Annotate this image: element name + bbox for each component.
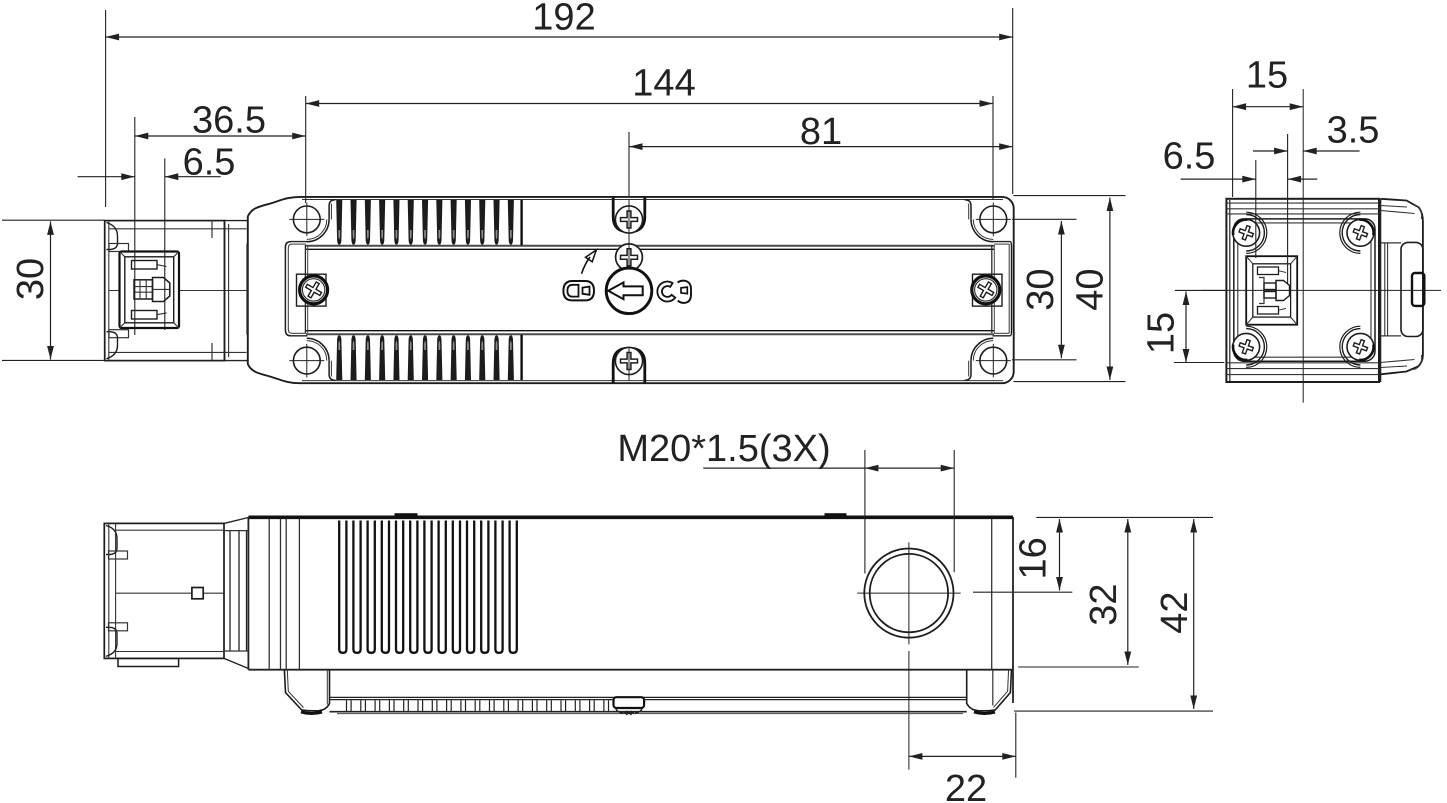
svg-text:22: 22	[945, 768, 987, 803]
svg-text:42: 42	[1154, 591, 1196, 633]
svg-text:M20*1.5(3X): M20*1.5(3X)	[617, 428, 830, 470]
svg-text:192: 192	[532, 0, 595, 39]
svg-text:15: 15	[1141, 312, 1183, 354]
svg-text:16: 16	[1013, 537, 1055, 579]
svg-text:36.5: 36.5	[192, 100, 266, 142]
svg-text:30: 30	[1020, 268, 1062, 310]
svg-text:144: 144	[632, 63, 695, 105]
svg-text:32: 32	[1083, 583, 1125, 625]
svg-text:3.5: 3.5	[1327, 110, 1380, 152]
svg-text:6.5: 6.5	[183, 142, 236, 184]
svg-text:15: 15	[1246, 55, 1288, 97]
svg-text:81: 81	[800, 111, 842, 153]
svg-text:30: 30	[10, 258, 52, 300]
svg-text:6.5: 6.5	[1163, 136, 1216, 178]
svg-text:40: 40	[1069, 268, 1111, 310]
